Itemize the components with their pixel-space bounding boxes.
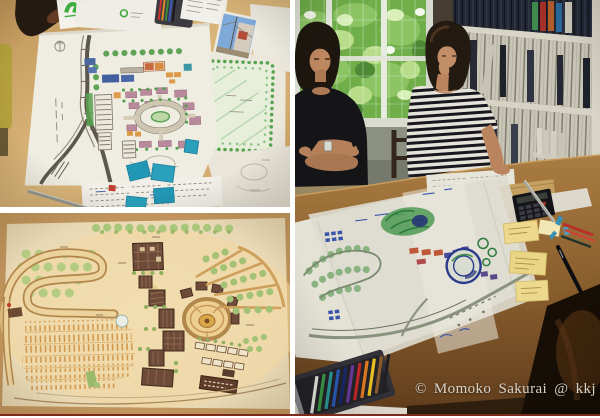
photo-right-meeting — [295, 0, 600, 414]
right-photo-art — [295, 0, 600, 414]
photo-top-left-site-plan — [0, 0, 290, 207]
photo-collage: © Momoko Sakurai @ kkj — [0, 0, 600, 418]
photo-credit: © Momoko Sakurai @ kkj — [415, 381, 596, 398]
photo-bottom-left-colored-plan — [0, 213, 290, 414]
top-left-photo-art — [0, 0, 290, 207]
bottom-divider — [0, 414, 600, 416]
bottom-left-photo-art — [0, 213, 290, 414]
